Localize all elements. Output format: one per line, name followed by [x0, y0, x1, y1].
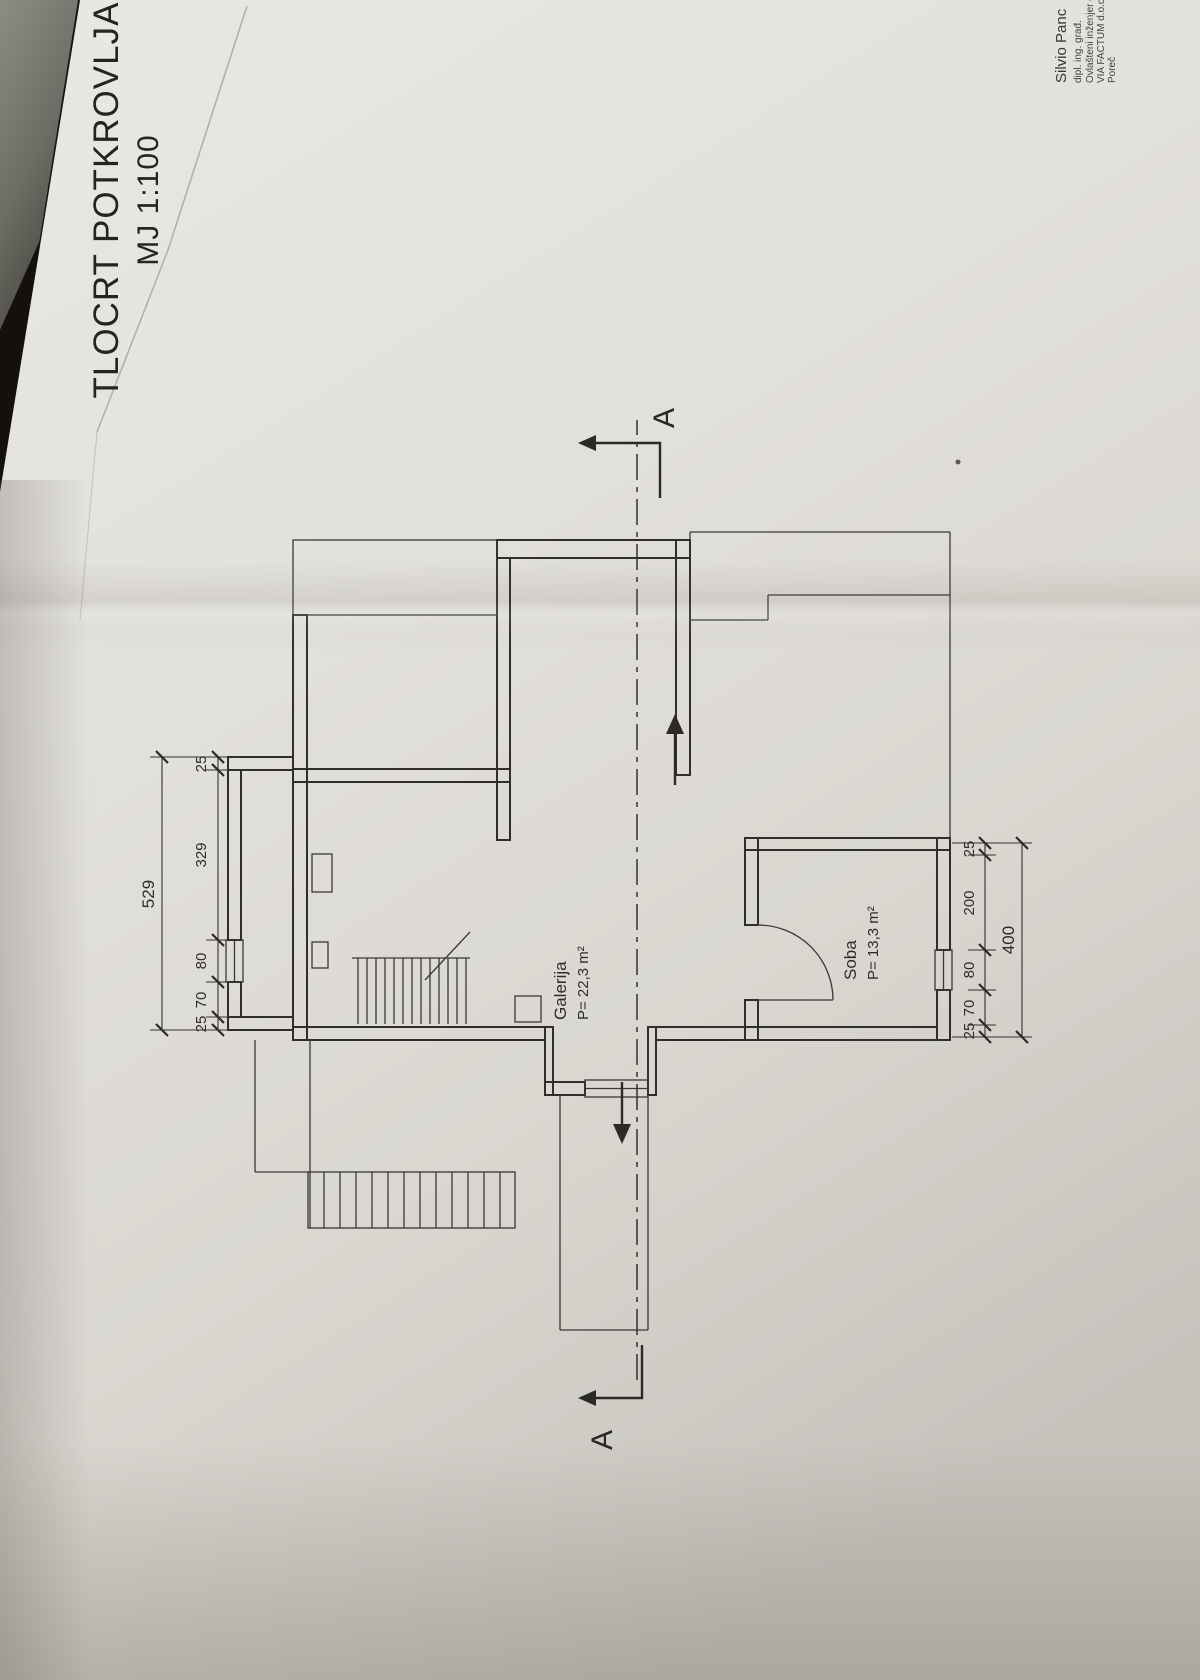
dim-bottom-seg-0: 25	[961, 1023, 978, 1040]
room-area-galerija: P= 22,3 m²	[575, 946, 592, 1020]
signature-name: Silvio Panc	[1053, 8, 1070, 83]
dim-bottom-seg-4: 25	[961, 841, 978, 858]
signature-company: VIA FACTUM d.o.o.	[1096, 0, 1107, 83]
dim-bottom-seg-1: 70	[961, 1000, 978, 1017]
signature-city: Poreč	[1107, 57, 1118, 83]
paper-speck	[956, 460, 961, 465]
dim-bottom-seg-2: 80	[961, 962, 978, 979]
dim-top-seg-0: 25	[193, 1016, 210, 1033]
dim-top-total: 529	[139, 880, 158, 908]
floor-plan-photo-canvas: TLOCRT POTKROVLJA MJ 1:100	[0, 0, 1200, 1680]
dim-bottom-total: 400	[999, 926, 1018, 954]
drawing-title: TLOCRT POTKROVLJA	[87, 2, 126, 399]
dim-top-seg-3: 329	[193, 842, 210, 867]
signature-role: Ovlašteni inženjer građ.	[1085, 0, 1096, 83]
room-name-galerija: Galerija	[551, 961, 570, 1020]
dim-top-seg-2: 80	[193, 953, 210, 970]
paper-fold-shadow	[0, 560, 1200, 650]
dim-top-seg-1: 70	[193, 992, 210, 1009]
bottom-shadow	[0, 1440, 1200, 1680]
dim-bottom-seg-3: 200	[961, 890, 978, 915]
photo-of-floor-plan: TLOCRT POTKROVLJA MJ 1:100	[0, 0, 1200, 1680]
dim-top-seg-4: 25	[193, 756, 210, 773]
signature-degree: dipl. ing. građ.	[1073, 20, 1084, 83]
room-name-soba: Soba	[841, 940, 860, 980]
drawing-scale: MJ 1:100	[132, 134, 165, 265]
room-area-soba: P= 13,3 m²	[865, 906, 882, 980]
left-edge-shadow	[0, 480, 90, 1680]
section-label-end: A	[648, 408, 681, 428]
